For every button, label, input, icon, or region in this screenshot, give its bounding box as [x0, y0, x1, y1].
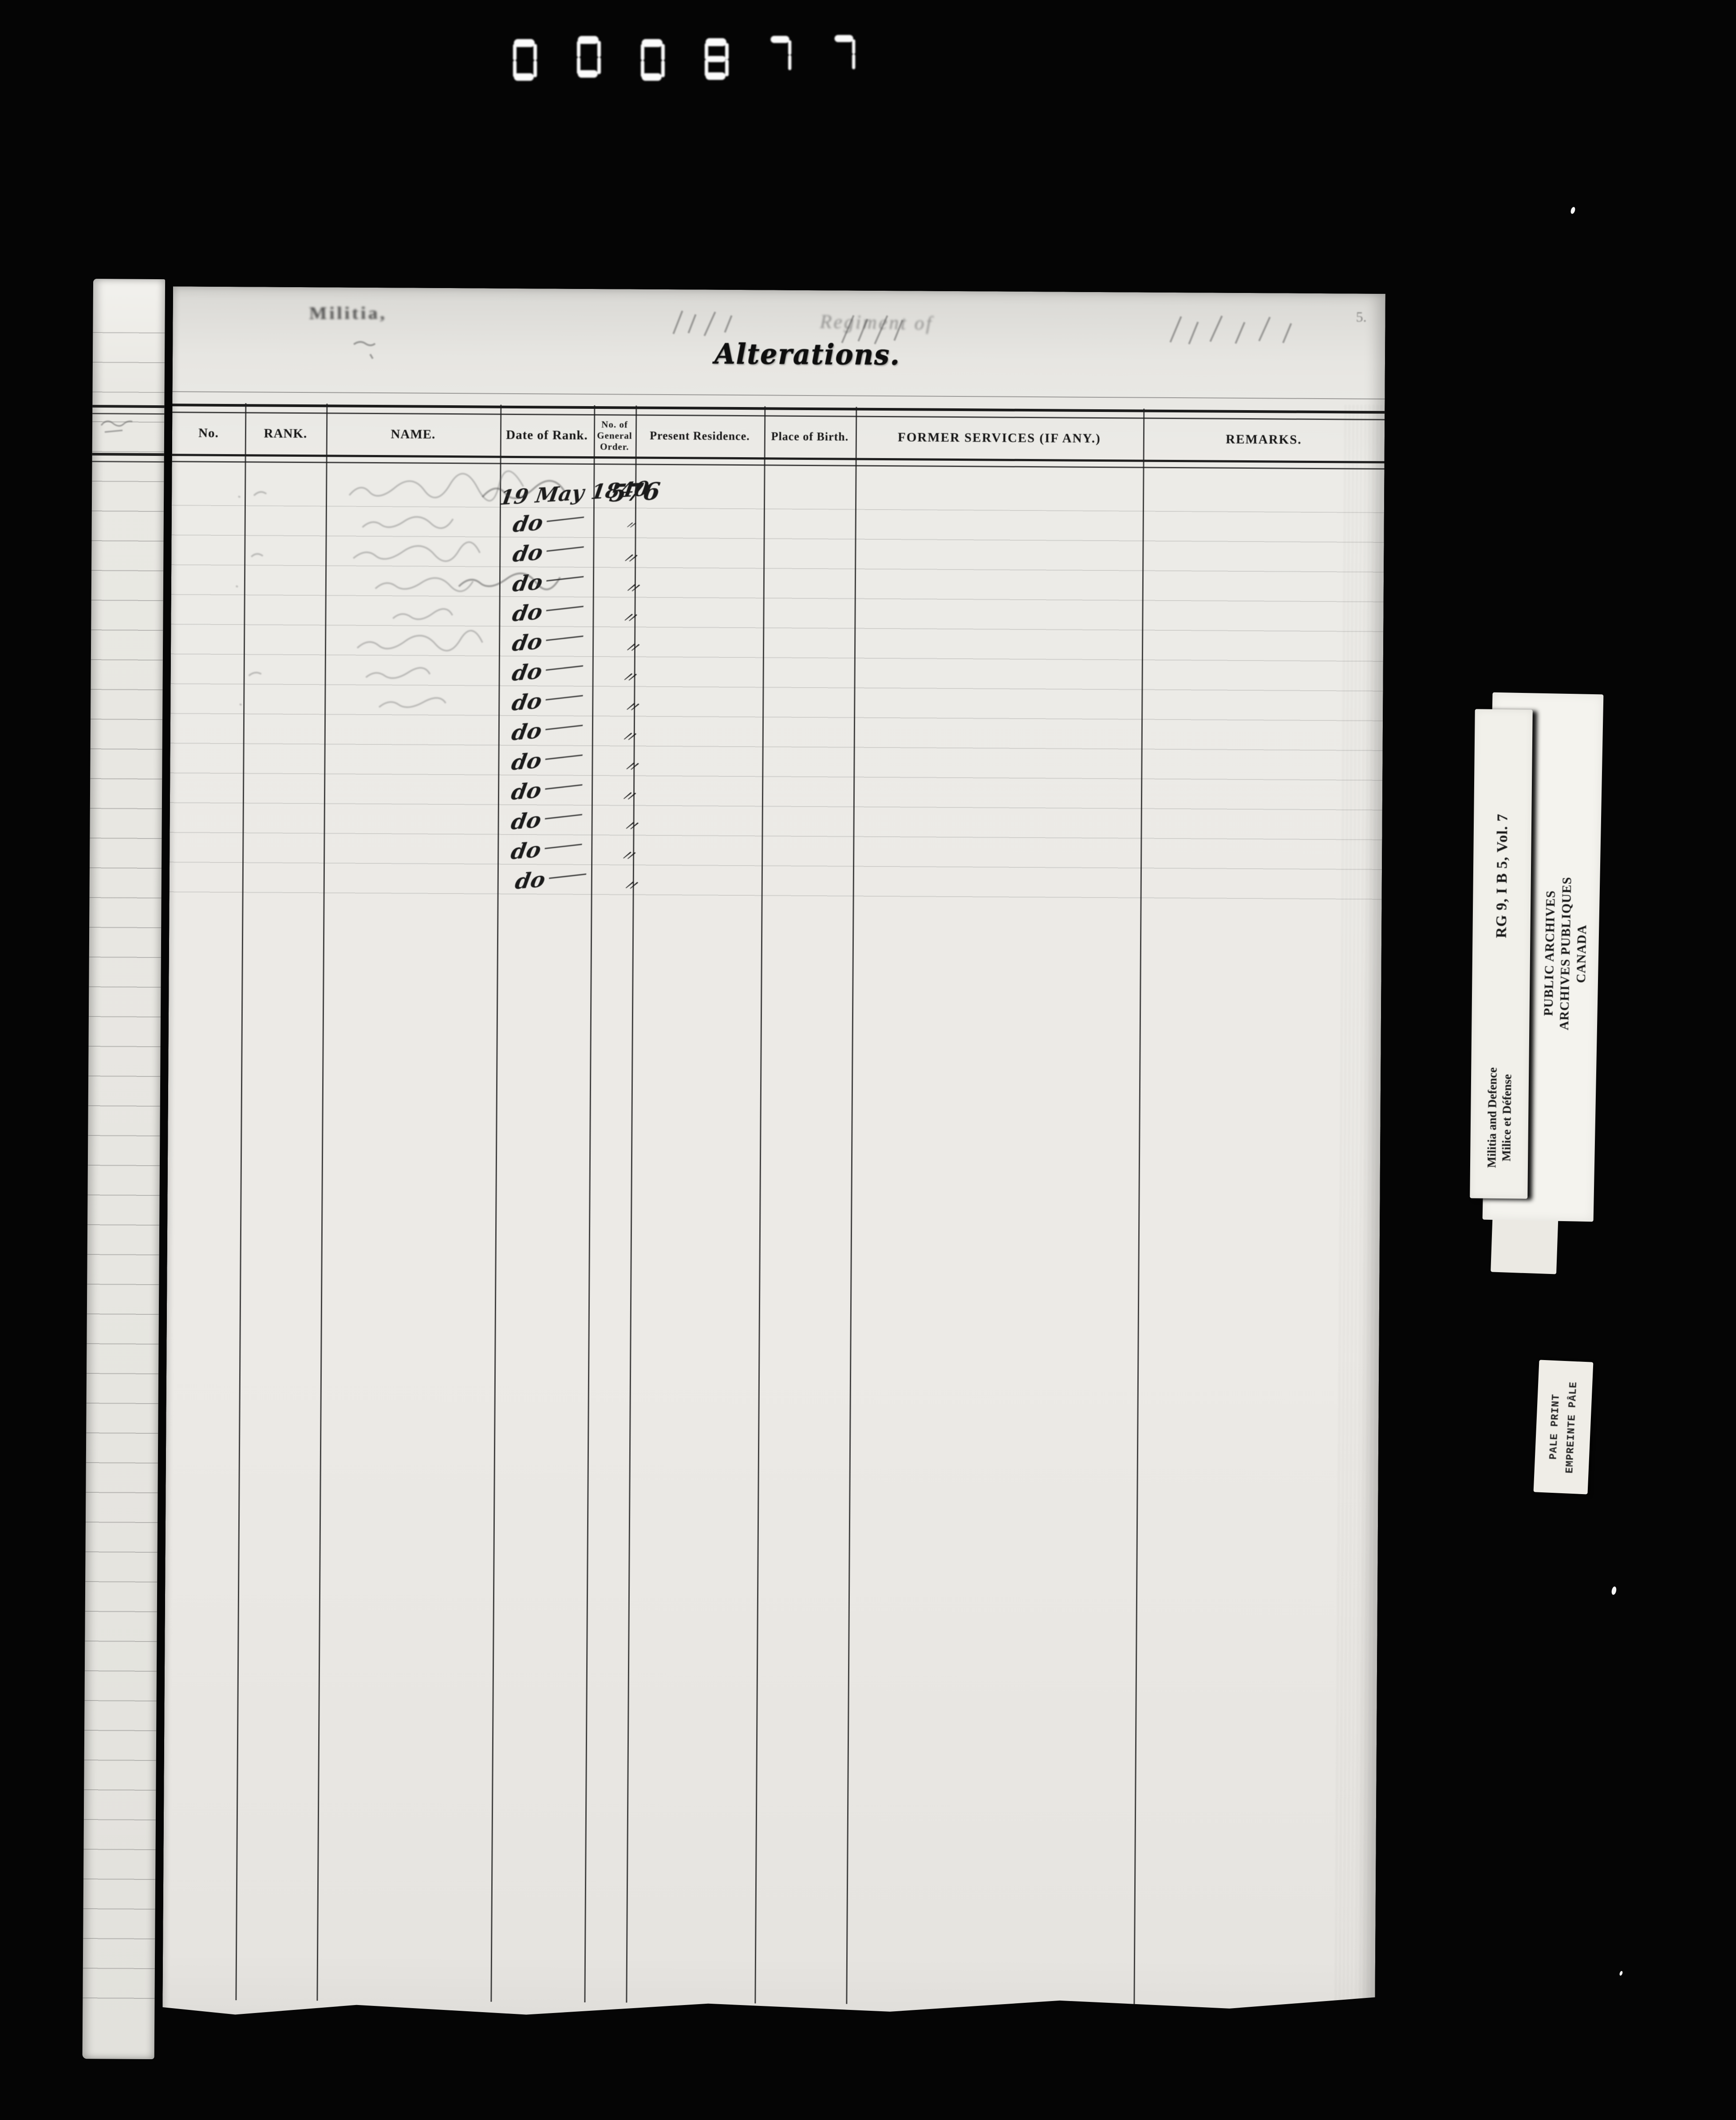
ditto-do: do — [509, 838, 543, 865]
ditto-dash — [549, 874, 586, 879]
ditto-mark: 〃 — [617, 784, 641, 807]
facing-page-edge — [83, 279, 165, 2059]
faint-militia-text: Militia, — [309, 302, 387, 324]
column-header-no: No. — [172, 412, 245, 454]
ditto-mark: 〃 — [616, 843, 641, 866]
ditto-do: do — [509, 778, 543, 805]
ditto-dash — [546, 517, 584, 522]
table-row: do〃 — [497, 718, 645, 747]
ditto-dash — [546, 576, 584, 581]
ditto-do: do — [510, 600, 544, 627]
ditto-mark: 〃 — [622, 516, 639, 532]
ditto-mark: 〃 — [617, 724, 641, 747]
strip-header-rule — [92, 453, 164, 463]
ditto-mark: 〃 — [619, 814, 643, 836]
general-order-entry: 576 — [608, 477, 662, 507]
header-thin-rule — [173, 391, 1385, 399]
column-header-former-services: FORMER SERVICES (IF ANY.) — [856, 417, 1144, 459]
table-row: do〃 — [498, 510, 647, 539]
ditto-do: do — [510, 659, 544, 686]
ditto-do: do — [511, 510, 545, 538]
ditto-do: do — [510, 689, 544, 716]
column-header-general-order: No. of General Order. — [594, 415, 636, 456]
page-title: Alterations. — [683, 338, 931, 372]
ditto-dash — [544, 814, 582, 819]
ditto-mark: 〃 — [618, 546, 643, 569]
ditto-dash — [544, 844, 582, 849]
ditto-mark: 〃 — [619, 873, 643, 896]
archives-line-country: CANADA — [1572, 877, 1591, 1031]
ditto-dash — [545, 755, 582, 760]
table-row: do〃 — [496, 837, 644, 866]
department-en: Militia and Defence — [1484, 1067, 1500, 1168]
reference-card: RG 9, I B 5, Vol. 7 Militia and Defence … — [1470, 709, 1533, 1198]
ditto-do: do — [510, 629, 544, 657]
column-header-present-residence: Present Residence. — [635, 415, 765, 457]
table-row: 19 May 1840 576 — [498, 480, 647, 509]
ditto-do: do — [509, 808, 543, 835]
row-ruling — [169, 505, 1384, 916]
ditto-dash — [545, 695, 583, 700]
ruled-lines — [83, 332, 165, 2010]
form-regiment-text: Regiment of — [820, 310, 933, 335]
ditto-dash — [545, 725, 583, 730]
column-header-place-of-birth: Place of Birth. — [764, 416, 856, 457]
table-row: do〃 — [497, 658, 646, 688]
ditto-mark: 〃 — [617, 665, 642, 688]
department-fr: Milice et Défense — [1499, 1068, 1515, 1168]
archives-line-fr: ARCHIVES PUBLIQUES — [1556, 877, 1575, 1031]
ditto-dash — [546, 636, 583, 641]
table-row: do〃 — [496, 807, 644, 836]
ditto-do: do — [513, 867, 547, 894]
table-row: do〃 — [496, 748, 645, 777]
column-header-remarks: REMARKS. — [1143, 419, 1385, 461]
table-row: do〃 — [496, 866, 644, 896]
ditto-mark: 〃 — [618, 605, 642, 628]
pale-print-card: PALE PRINT EMPREINTE PÂLE — [1534, 1360, 1594, 1494]
ditto-mark: 〃 — [620, 576, 645, 598]
ditto-dash — [545, 784, 582, 790]
ditto-do: do — [510, 719, 544, 746]
table-row: do〃 — [497, 629, 646, 658]
ditto-dash — [546, 546, 584, 552]
pale-print-fr: EMPREINTE PÂLE — [1561, 1381, 1582, 1474]
column-header-rank: RANK. — [245, 413, 327, 454]
ditto-do: do — [511, 570, 544, 597]
table-row: do〃 — [497, 599, 646, 628]
ditto-dash — [546, 606, 583, 611]
page-corner-mark: 5. — [1356, 309, 1367, 325]
reference-number: RG 9, I B 5, Vol. 7 — [1493, 813, 1511, 938]
ditto-mark: 〃 — [620, 695, 644, 717]
register-page: Militia, Regiment of 5. Alterations. No.… — [162, 286, 1385, 2029]
ditto-do: do — [509, 748, 543, 775]
ditto-do: do — [511, 540, 544, 567]
ditto-dash — [545, 665, 583, 671]
microfilm-scan: Militia, Regiment of 5. Alterations. No.… — [0, 0, 1736, 2120]
strip-header-rule — [92, 405, 164, 415]
table-row: do〃 — [497, 688, 645, 717]
ditto-mark: 〃 — [619, 754, 644, 777]
column-header-date-of-rank: Date of Rank. — [500, 415, 594, 456]
table-row: do〃 — [496, 777, 645, 807]
table-row: do〃 — [497, 569, 646, 598]
column-header-name: NAME. — [326, 413, 501, 455]
ditto-mark: 〃 — [620, 635, 645, 658]
table-row: do〃 — [497, 539, 646, 569]
